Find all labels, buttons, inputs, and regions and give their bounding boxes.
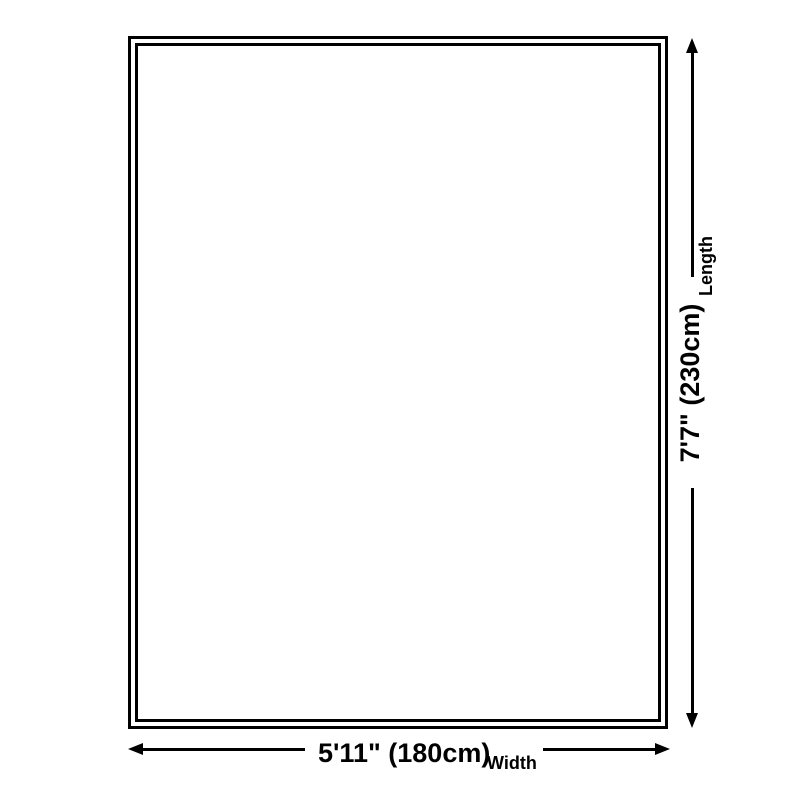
width-dimension-value: 5'11" (180cm) xyxy=(318,739,490,767)
item-outline-outer xyxy=(128,36,668,729)
length-dimension-line-bottom xyxy=(691,488,694,714)
item-outline-inner xyxy=(135,43,661,722)
arrow-down-icon xyxy=(686,713,698,728)
arrow-right-icon xyxy=(655,743,670,755)
length-dimension-value: 7'7" (230cm) xyxy=(676,283,704,483)
dimension-diagram: Length 7'7" (230cm) 5'11" (180cm) Width xyxy=(0,0,800,800)
width-dimension-line-left xyxy=(142,748,305,751)
width-dimension-label: Width xyxy=(487,754,537,772)
width-dimension-line-right xyxy=(543,748,656,751)
length-dimension-line-top xyxy=(691,52,694,277)
arrow-left-icon xyxy=(128,743,143,755)
arrow-up-icon xyxy=(686,38,698,53)
